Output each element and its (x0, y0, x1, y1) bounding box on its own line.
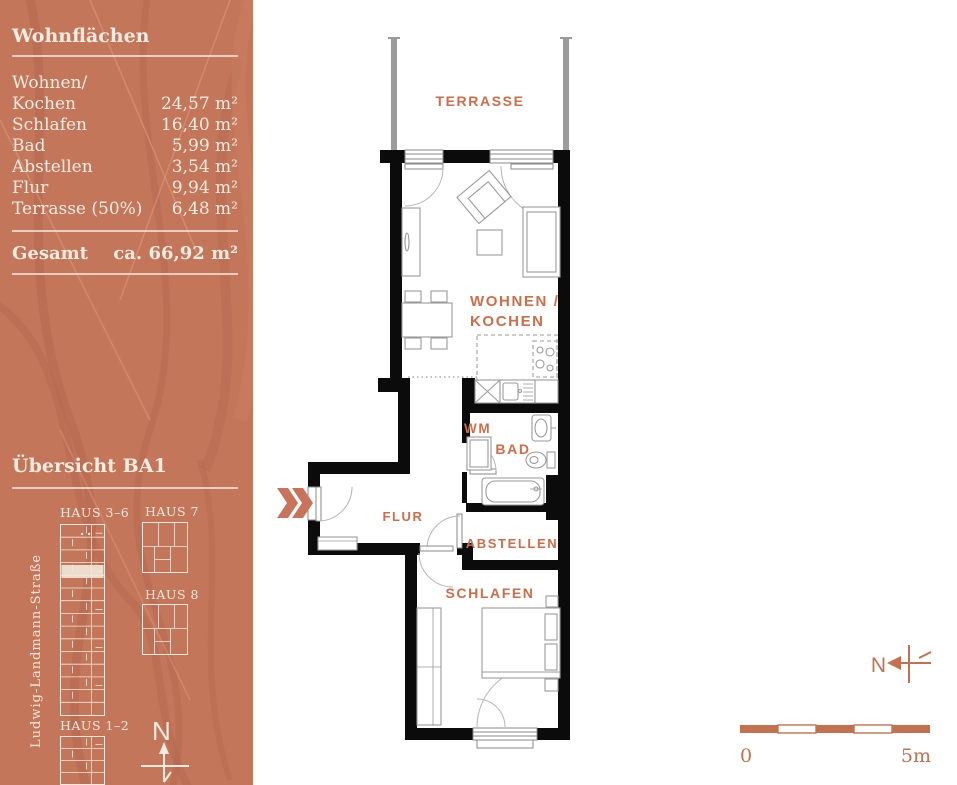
kitchen-counter (477, 335, 557, 380)
room-label-abstellen: ABSTELLEN (466, 536, 558, 551)
room-label-schlafen: SCHLAFEN (445, 585, 534, 601)
chevron-right-icon (277, 488, 298, 518)
scale-zero-label: 0 (740, 745, 752, 767)
dining-chair (431, 338, 447, 349)
room-label-terrasse: TERRASSE (435, 93, 524, 109)
floor-plan: TERRASSE WOHNEN / KOCHEN WM BAD FLUR ABS… (0, 0, 957, 785)
dining-table (402, 303, 452, 337)
nightstand (546, 596, 558, 607)
washing-machine (467, 437, 491, 470)
shoe-cabinet (318, 537, 357, 550)
nightstand (545, 679, 558, 691)
room-label-wm: WM (464, 421, 491, 436)
north-arrow: N (871, 645, 931, 683)
north-label: N (871, 654, 886, 677)
wardrobe (417, 608, 441, 725)
dining-chair (431, 291, 447, 302)
room-label-wohnen: WOHNEN / (470, 293, 559, 310)
room-label-kochen: KOCHEN (470, 313, 545, 330)
floorplan-page: Wohnflächen Wohnen/ Kochen 24,57 m² Schl… (0, 0, 957, 785)
bed (482, 608, 560, 678)
armchair (457, 170, 511, 223)
scale-five-label: 5m (901, 745, 931, 767)
scale-bar: 0 5m (740, 725, 931, 767)
dining-chair (405, 291, 421, 302)
coffee-table (477, 230, 502, 255)
dining-chair (405, 338, 421, 349)
room-label-flur: FLUR (382, 509, 423, 524)
stove (533, 341, 557, 377)
room-label-bad: BAD (495, 441, 530, 457)
